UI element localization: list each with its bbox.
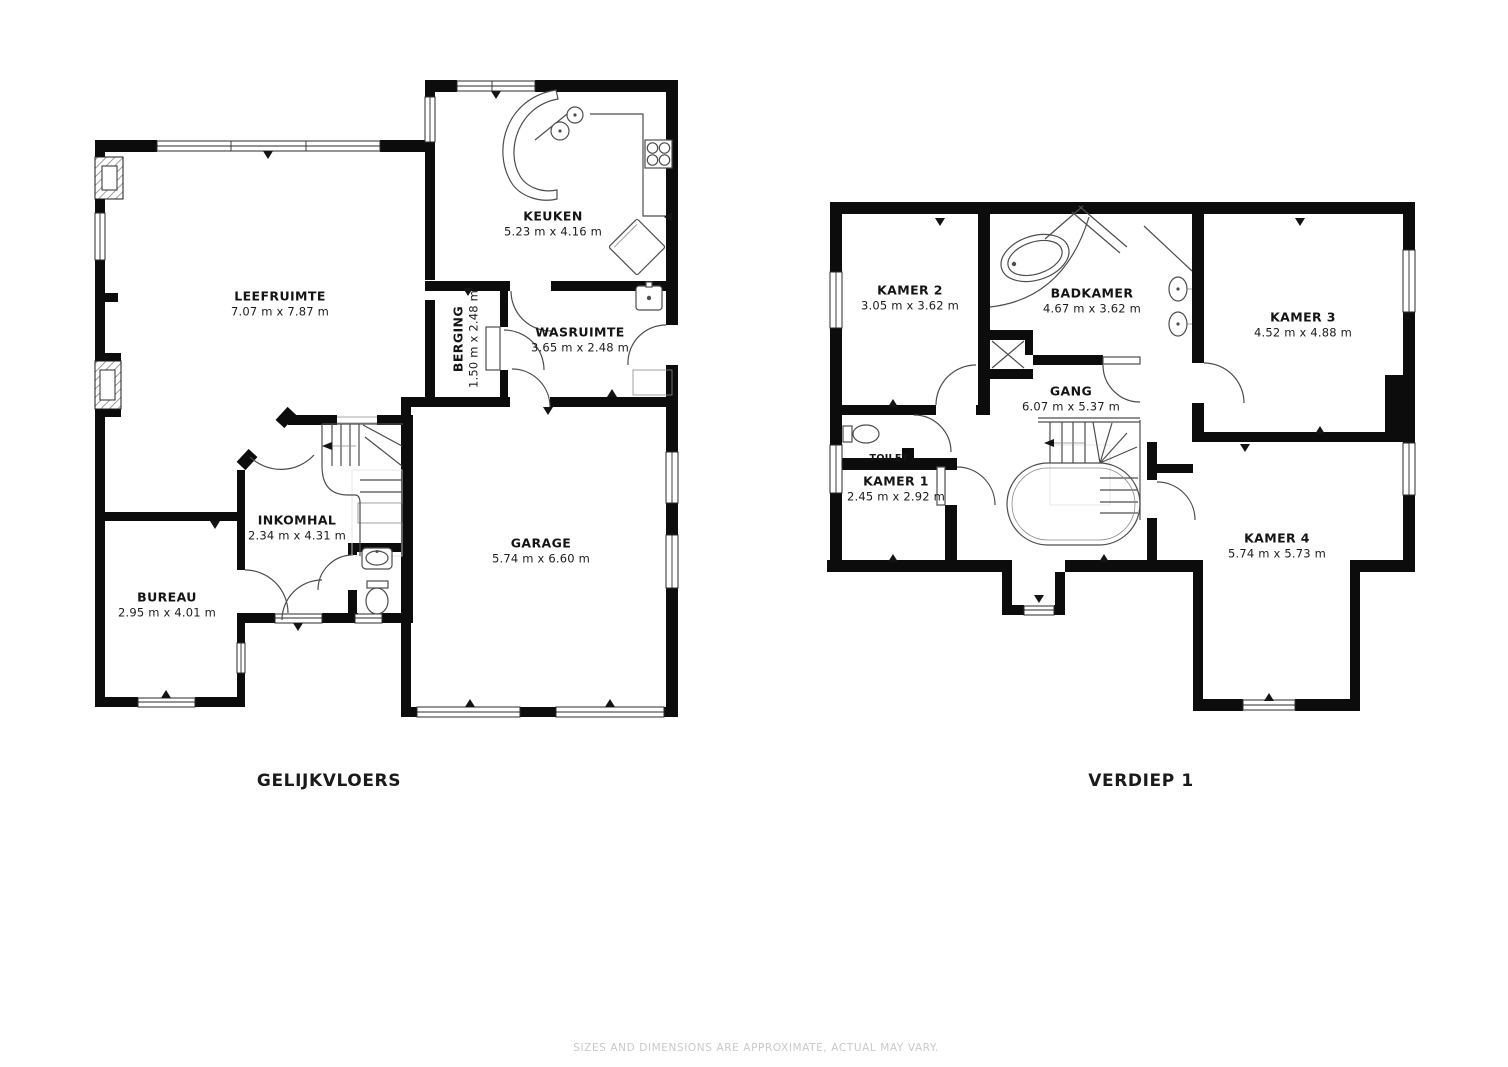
ground-walls — [95, 80, 678, 717]
room-name: KAMER 3 — [1254, 309, 1352, 325]
room-dims: 2.95 m x 4.01 m — [118, 606, 216, 621]
room-dims: 2.45 m x 2.92 m — [847, 490, 945, 505]
disclaimer-text: SIZES AND DIMENSIONS ARE APPROXIMATE, AC… — [573, 1042, 939, 1054]
first-staircase — [1007, 418, 1140, 545]
room-label-leefruimte: LEEFRUIMTE 7.07 m x 7.87 m — [231, 288, 329, 319]
plan-ground-floor — [95, 80, 678, 717]
room-dims: 4.52 m x 4.88 m — [1254, 326, 1352, 341]
room-name: WASRUIMTE — [531, 324, 629, 340]
room-name: TOILET — [870, 453, 909, 465]
floorplan-page: LEEFRUIMTE 7.07 m x 7.87 m KEUKEN 5.23 m… — [0, 0, 1508, 1067]
room-label-kamer4: KAMER 4 5.74 m x 5.73 m — [1228, 530, 1326, 561]
room-label-wasruimte: WASRUIMTE 3.65 m x 2.48 m — [531, 324, 629, 355]
room-dims: 4.67 m x 3.62 m — [1043, 302, 1141, 317]
room-label-kamer2: KAMER 2 3.05 m x 3.62 m — [861, 282, 959, 313]
room-dims: 3.05 m x 3.62 m — [861, 299, 959, 314]
floor-title-first: VERDIEP 1 — [1088, 771, 1194, 791]
first-vanity-sinks-icon — [1144, 226, 1192, 336]
ground-kitchen-island — [609, 219, 666, 276]
room-dims: 7.07 m x 7.87 m — [231, 305, 329, 320]
room-dims: 5.74 m x 5.73 m — [1228, 547, 1326, 562]
room-name: GARAGE — [492, 535, 590, 551]
room-dims: 1.50 m x 2.48 m — [467, 290, 482, 388]
room-name: KAMER 2 — [861, 282, 959, 298]
plan-first-floor — [827, 202, 1415, 711]
room-name: KAMER 1 — [847, 473, 945, 489]
ground-laundry-sink-icon — [636, 282, 662, 310]
first-shower-cell-icon — [992, 341, 1024, 368]
first-walls — [827, 202, 1415, 711]
room-label-kamer3: KAMER 3 4.52 m x 4.88 m — [1254, 309, 1352, 340]
room-dims: 3.65 m x 2.48 m — [531, 341, 629, 356]
ground-wc-sink-icon — [362, 548, 392, 569]
room-label-badkamer: BADKAMER 4.67 m x 3.62 m — [1043, 285, 1141, 316]
room-name: INKOMHAL — [248, 512, 346, 528]
room-label-bureau: BUREAU 2.95 m x 4.01 m — [118, 589, 216, 620]
room-label-toilet: TOILET — [870, 453, 909, 465]
ground-cooktop-icon — [645, 140, 672, 168]
room-dims: 5.74 m x 6.60 m — [492, 552, 590, 567]
room-label-keuken: KEUKEN 5.23 m x 4.16 m — [504, 208, 602, 239]
room-name: BUREAU — [118, 589, 216, 605]
room-dims: 6.07 m x 5.37 m — [1022, 400, 1120, 415]
room-dims: 2.34 m x 4.31 m — [248, 529, 346, 544]
room-name: KAMER 4 — [1228, 530, 1326, 546]
room-name: BERGING — [450, 290, 466, 388]
room-label-inkomhal: INKOMHAL 2.34 m x 4.31 m — [248, 512, 346, 543]
room-label-garage: GARAGE 5.74 m x 6.60 m — [492, 535, 590, 566]
room-name: LEEFRUIMTE — [231, 288, 329, 304]
room-dims: 5.23 m x 4.16 m — [504, 225, 602, 240]
ground-kitchen-counter — [503, 90, 666, 216]
first-toilet-icon — [843, 425, 879, 443]
room-label-gang: GANG 6.07 m x 5.37 m — [1022, 383, 1120, 414]
room-name: BADKAMER — [1043, 285, 1141, 301]
ground-wc-toilet-icon — [366, 581, 388, 614]
floor-title-ground: GELIJKVLOERS — [257, 771, 401, 791]
room-name: GANG — [1022, 383, 1120, 399]
room-label-kamer1: KAMER 1 2.45 m x 2.92 m — [847, 473, 945, 504]
room-label-berging: BERGING 1.50 m x 2.48 m — [450, 290, 481, 388]
room-name: KEUKEN — [504, 208, 602, 224]
